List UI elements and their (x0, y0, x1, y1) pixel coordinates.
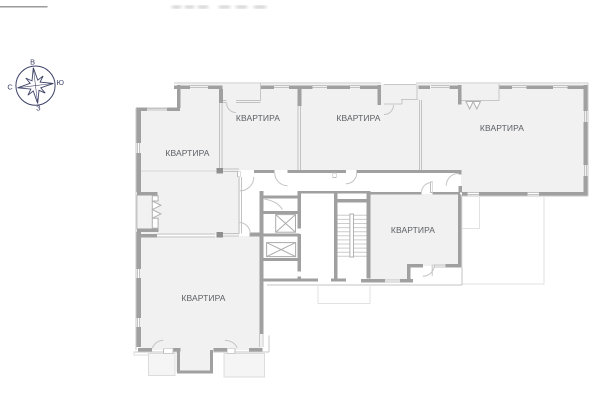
svg-text:З: З (36, 104, 41, 113)
svg-text:С: С (7, 82, 13, 91)
svg-text:Ю: Ю (56, 78, 64, 87)
svg-text:В: В (30, 58, 35, 67)
